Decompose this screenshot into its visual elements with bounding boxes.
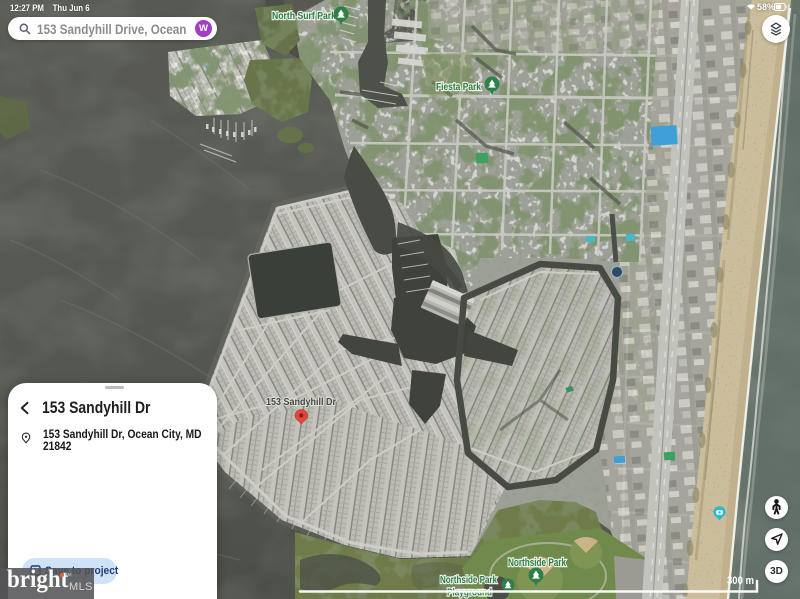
svg-text:153 Sandyhill Dr: 153 Sandyhill Dr (266, 396, 336, 408)
svg-text:Northside Park: Northside Park (440, 574, 497, 586)
svg-text:300 m: 300 m (727, 575, 754, 587)
svg-text:Fiesta Park: Fiesta Park (436, 81, 481, 93)
svg-text:Northside Park: Northside Park (508, 557, 567, 569)
svg-text:North Surf Park: North Surf Park (272, 10, 336, 22)
